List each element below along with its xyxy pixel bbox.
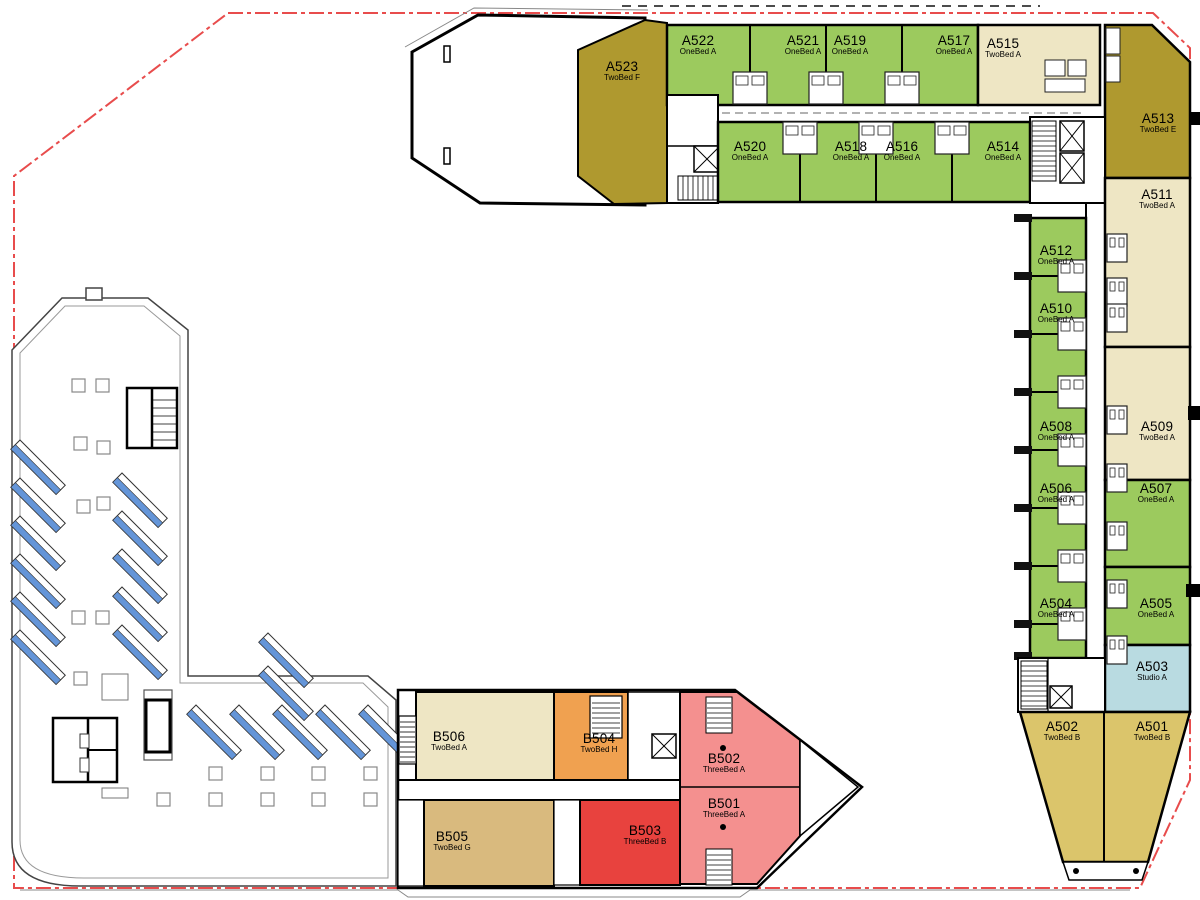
unit-type-text: OneBed A xyxy=(1038,496,1074,504)
unit-id-text: A506 xyxy=(1038,482,1074,496)
unit-type-text: ThreeBed A xyxy=(703,766,745,774)
unit-label-b501: B501ThreeBed A xyxy=(703,797,745,819)
unit-type-text: OneBed A xyxy=(1038,434,1074,442)
floor-plan-canvas: A523TwoBed FA522OneBed AA521OneBed AA519… xyxy=(0,0,1200,900)
unit-type-text: TwoBed E xyxy=(1140,126,1176,134)
unit-id-text: A511 xyxy=(1139,188,1175,202)
unit-type-text: Studio A xyxy=(1136,674,1168,682)
unit-label-a506: A506OneBed A xyxy=(1038,482,1074,504)
unit-region-a523[interactable] xyxy=(578,20,667,204)
core-stair-elevator-west xyxy=(667,95,720,203)
unit-id-text: A515 xyxy=(985,37,1021,51)
unit-type-text: OneBed A xyxy=(1138,496,1174,504)
unit-label-a505: A505OneBed A xyxy=(1138,597,1174,619)
unit-region-b502-b501[interactable] xyxy=(680,692,800,884)
unit-label-b502: B502ThreeBed A xyxy=(703,752,745,774)
unit-id-text: A505 xyxy=(1138,597,1174,611)
unit-id-text: B505 xyxy=(433,830,470,844)
unit-type-text: TwoBed F xyxy=(604,74,640,82)
unit-id-text: B502 xyxy=(703,752,745,766)
core-stair-elevator-east xyxy=(1030,117,1105,203)
parking-room-block xyxy=(53,718,117,782)
unit-id-text: A510 xyxy=(1038,302,1074,316)
unit-id-text: A518 xyxy=(833,140,869,154)
unit-type-text: OneBed A xyxy=(833,154,869,162)
unit-type-text: ThreeBed B xyxy=(624,838,667,846)
unit-id-text: A507 xyxy=(1138,482,1174,496)
unit-label-a519: A519OneBed A xyxy=(832,34,868,56)
unit-label-a518: A518OneBed A xyxy=(833,140,869,162)
unit-id-text: A512 xyxy=(1038,244,1074,258)
unit-label-b505: B505TwoBed G xyxy=(433,830,470,852)
unit-type-text: OneBed A xyxy=(1138,611,1174,619)
unit-id-text: A519 xyxy=(832,34,868,48)
unit-type-text: OneBed A xyxy=(936,48,972,56)
bottom-wing xyxy=(398,690,862,888)
unit-label-a521: A521OneBed A xyxy=(785,34,821,56)
unit-type-text: TwoBed A xyxy=(985,51,1021,59)
unit-id-text: A522 xyxy=(680,34,716,48)
unit-id-text: A514 xyxy=(985,140,1021,154)
unit-id-text: A521 xyxy=(785,34,821,48)
unit-type-text: OneBed A xyxy=(985,154,1021,162)
unit-id-text: A501 xyxy=(1134,720,1170,734)
unit-label-a510: A510OneBed A xyxy=(1038,302,1074,324)
unit-id-text: B501 xyxy=(703,797,745,811)
unit-label-a512: A512OneBed A xyxy=(1038,244,1074,266)
unit-type-text: ThreeBed A xyxy=(703,811,745,819)
unit-type-text: TwoBed B xyxy=(1044,734,1080,742)
unit-label-a514: A514OneBed A xyxy=(985,140,1021,162)
unit-id-text: B503 xyxy=(624,824,667,838)
unit-label-a513: A513TwoBed E xyxy=(1140,112,1176,134)
unit-label-b506: B506TwoBed A xyxy=(431,730,467,752)
core-stair-elevator-south xyxy=(1018,658,1105,712)
unit-type-text: OneBed A xyxy=(1038,316,1074,324)
unit-type-text: OneBed A xyxy=(785,48,821,56)
unit-id-text: A508 xyxy=(1038,420,1074,434)
unit-id-text: B506 xyxy=(431,730,467,744)
unit-id-text: A502 xyxy=(1044,720,1080,734)
unit-type-text: TwoBed A xyxy=(1139,434,1175,442)
unit-type-text: OneBed A xyxy=(1038,611,1074,619)
unit-label-a508: A508OneBed A xyxy=(1038,420,1074,442)
unit-type-text: TwoBed B xyxy=(1134,734,1170,742)
unit-type-text: OneBed A xyxy=(680,48,716,56)
unit-label-a504: A504OneBed A xyxy=(1038,597,1074,619)
unit-id-text: A509 xyxy=(1139,420,1175,434)
unit-label-a522: A522OneBed A xyxy=(680,34,716,56)
unit-label-a503: A503Studio A xyxy=(1136,660,1168,682)
unit-id-text: A523 xyxy=(604,60,640,74)
unit-type-text: OneBed A xyxy=(884,154,920,162)
floor-plan-svg xyxy=(0,0,1200,900)
unit-label-b504: B504TwoBed H xyxy=(581,732,618,754)
unit-type-text: OneBed A xyxy=(732,154,768,162)
unit-id-text: A503 xyxy=(1136,660,1168,674)
unit-label-a501: A501TwoBed B xyxy=(1134,720,1170,742)
unit-label-a515: A515TwoBed A xyxy=(985,37,1021,59)
unit-label-a511: A511TwoBed A xyxy=(1139,188,1175,210)
unit-label-a502: A502TwoBed B xyxy=(1044,720,1080,742)
unit-label-b503: B503ThreeBed B xyxy=(624,824,667,846)
unit-type-text: TwoBed A xyxy=(431,744,467,752)
unit-label-a523: A523TwoBed F xyxy=(604,60,640,82)
unit-label-a509: A509TwoBed A xyxy=(1139,420,1175,442)
unit-type-text: TwoBed G xyxy=(433,844,470,852)
unit-type-text: OneBed A xyxy=(832,48,868,56)
unit-type-text: OneBed A xyxy=(1038,258,1074,266)
unit-id-text: A520 xyxy=(732,140,768,154)
unit-id-text: A513 xyxy=(1140,112,1176,126)
unit-type-text: TwoBed A xyxy=(1139,202,1175,210)
tip-terrace xyxy=(800,740,858,836)
unit-label-a520: A520OneBed A xyxy=(732,140,768,162)
unit-id-text: B504 xyxy=(581,732,618,746)
unit-id-text: A516 xyxy=(884,140,920,154)
unit-id-text: A504 xyxy=(1038,597,1074,611)
parking-area xyxy=(12,288,396,886)
unit-label-a507: A507OneBed A xyxy=(1138,482,1174,504)
unit-label-a517: A517OneBed A xyxy=(936,34,972,56)
unit-label-a516: A516OneBed A xyxy=(884,140,920,162)
unit-id-text: A517 xyxy=(936,34,972,48)
unit-type-text: TwoBed H xyxy=(581,746,618,754)
parking-stair-room xyxy=(127,388,177,448)
